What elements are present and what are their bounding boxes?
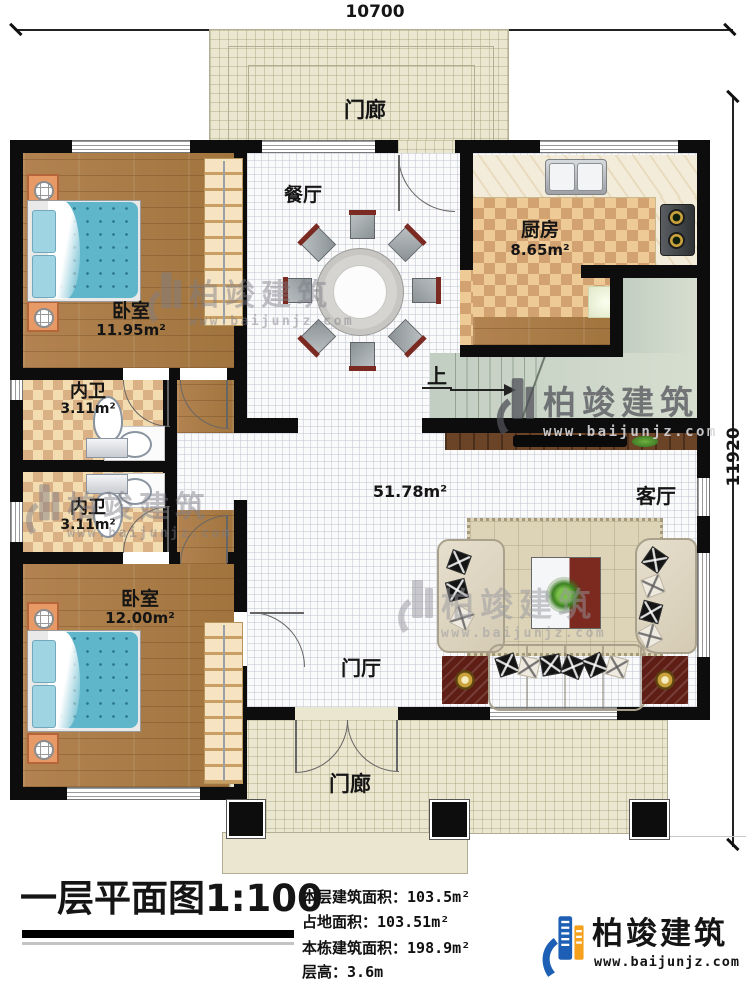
brand-site: www.baijunjz.com bbox=[594, 955, 750, 969]
stat-value: 103.51m² bbox=[377, 913, 449, 931]
dining-table-top bbox=[333, 265, 387, 319]
bed-pillow bbox=[32, 255, 56, 298]
window-living-right-small bbox=[697, 478, 710, 516]
label-bedroom1: 卧室 bbox=[99, 302, 163, 322]
dining-chair bbox=[350, 214, 375, 239]
wall bbox=[460, 345, 615, 357]
floor-plan: 10700 11920 bbox=[0, 0, 750, 983]
door-leaf bbox=[295, 720, 297, 772]
dimension-height-label: 11920 bbox=[726, 425, 744, 489]
wardrobe-bedroom1 bbox=[204, 158, 243, 326]
label-porch-bottom: 门廊 bbox=[310, 773, 390, 795]
plan-title: 一层平面图1:100 bbox=[20, 880, 300, 919]
coffee-table-plant bbox=[546, 577, 582, 613]
wall bbox=[10, 787, 67, 800]
label-kitchen-area: 8.65m² bbox=[503, 243, 577, 259]
door-leaf bbox=[167, 380, 169, 426]
brand-name: 柏竣建筑 bbox=[592, 918, 748, 951]
stat-label: 层高： bbox=[302, 963, 347, 981]
extension-line bbox=[660, 836, 746, 837]
wall bbox=[227, 552, 247, 564]
wall bbox=[581, 265, 697, 278]
side-table-lamp bbox=[642, 656, 688, 704]
door-leaf bbox=[250, 612, 304, 614]
side-table-lamp bbox=[442, 656, 488, 704]
wall bbox=[375, 140, 398, 153]
window-dining-top bbox=[262, 140, 375, 153]
brand-logo-icon bbox=[538, 914, 588, 978]
stat-land-area: 占地面积：103.51m² bbox=[302, 911, 449, 932]
door-leaf bbox=[226, 515, 228, 563]
stair-landing-floor bbox=[623, 278, 697, 353]
entry-door-opening-top bbox=[398, 140, 458, 153]
stat-label: 占地面积： bbox=[302, 913, 377, 931]
label-bedroom2-area: 12.00m² bbox=[96, 611, 184, 627]
wardrobe-bedroom2 bbox=[204, 622, 243, 784]
bed-pillow bbox=[32, 685, 56, 728]
stat-floor-height: 层高：3.6m bbox=[302, 961, 383, 982]
door-leaf bbox=[396, 720, 398, 771]
bed-pillow bbox=[32, 640, 56, 683]
stat-label: 本层建筑面积： bbox=[302, 888, 407, 906]
toilet-bath2-tank bbox=[86, 474, 128, 494]
label-stairs-up: 上 bbox=[422, 366, 452, 389]
stove-burner bbox=[668, 232, 685, 249]
title-underline-thick bbox=[22, 930, 294, 938]
kitchen-lower-counter bbox=[473, 317, 613, 345]
porch-steps bbox=[223, 833, 467, 873]
sofa-pillow bbox=[517, 655, 541, 679]
label-living: 客厅 bbox=[620, 486, 692, 507]
stat-building-area: 本栋建筑面积：198.9m² bbox=[302, 937, 470, 958]
dining-chair bbox=[412, 278, 437, 303]
wall bbox=[169, 368, 180, 380]
label-bedroom2: 卧室 bbox=[108, 590, 172, 610]
porch-column bbox=[227, 800, 265, 838]
sofa-pillow bbox=[539, 653, 562, 676]
label-kitchen: 厨房 bbox=[503, 221, 577, 241]
label-bath2-area: 3.11m² bbox=[52, 518, 124, 533]
bed-pillow bbox=[32, 210, 56, 253]
stove-burner bbox=[668, 209, 685, 226]
dimension-width-label: 10700 bbox=[340, 4, 410, 22]
wall bbox=[10, 552, 123, 564]
door-leaf bbox=[167, 506, 169, 552]
kitchen-door-opening-floor bbox=[460, 270, 473, 345]
wall bbox=[398, 707, 490, 720]
wall bbox=[10, 368, 123, 380]
kitchen-sink-basin bbox=[549, 163, 575, 191]
tv bbox=[513, 435, 627, 447]
label-open-area: 51.78m² bbox=[360, 484, 460, 501]
wall bbox=[169, 552, 180, 564]
stair-arrow-head bbox=[504, 384, 516, 396]
kitchen-sink-basin bbox=[577, 163, 603, 191]
label-hall: 门厅 bbox=[325, 658, 397, 679]
wall bbox=[227, 368, 247, 380]
window-living-right-large bbox=[697, 553, 710, 657]
wall bbox=[460, 153, 473, 270]
label-dining: 餐厅 bbox=[272, 186, 334, 206]
door-leaf bbox=[398, 155, 400, 211]
nightstand bbox=[27, 733, 59, 764]
window-kitchen-top bbox=[540, 140, 678, 153]
wall bbox=[422, 418, 710, 433]
dining-chair bbox=[350, 342, 375, 367]
label-porch-top: 门廊 bbox=[325, 99, 405, 121]
wall bbox=[455, 140, 540, 153]
window-bedroom2-bottom bbox=[67, 787, 200, 800]
wall bbox=[190, 140, 262, 153]
porch-column bbox=[430, 800, 469, 839]
wall bbox=[234, 418, 298, 433]
porch-column bbox=[630, 800, 669, 839]
window-bedroom1-top bbox=[72, 140, 190, 153]
stat-value: 103.5m² bbox=[407, 888, 470, 906]
nightstand bbox=[27, 301, 59, 332]
toilet-bath1-tank bbox=[86, 438, 128, 458]
stat-label: 本栋建筑面积： bbox=[302, 939, 407, 957]
door-leaf bbox=[226, 380, 228, 428]
stair-arrow-line bbox=[450, 389, 506, 391]
corridor-nook-floor bbox=[177, 433, 247, 510]
title-underline-thin bbox=[22, 942, 294, 945]
window-bath2-left bbox=[10, 502, 23, 542]
wall bbox=[610, 278, 623, 357]
tv-plant-decor bbox=[632, 436, 658, 447]
stat-floor-area: 本层建筑面积：103.5m² bbox=[302, 886, 470, 907]
label-bath2: 内卫 bbox=[52, 499, 124, 518]
entry-door-opening-bottom bbox=[295, 707, 398, 720]
label-bath1: 内卫 bbox=[52, 383, 124, 402]
nightstand bbox=[27, 602, 59, 633]
stat-value: 3.6m bbox=[347, 963, 383, 981]
label-bath1-area: 3.11m² bbox=[52, 402, 124, 417]
wall bbox=[10, 460, 163, 472]
dining-chair bbox=[287, 278, 312, 303]
stat-value: 198.9m² bbox=[407, 939, 470, 957]
label-bedroom1-area: 11.95m² bbox=[87, 323, 175, 339]
